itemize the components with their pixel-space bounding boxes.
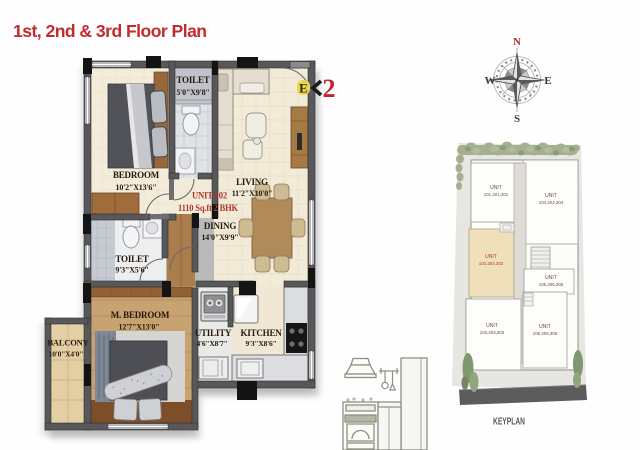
svg-text:9'3"X5'6": 9'3"X5'6" <box>115 266 148 275</box>
svg-text:5'0"X9'8": 5'0"X9'8" <box>176 88 209 97</box>
svg-text:12'7"X13'0": 12'7"X13'0" <box>119 323 160 332</box>
svg-text:UNIT: UNIT <box>545 275 557 281</box>
svg-text:KEYPLAN: KEYPLAN <box>493 417 525 428</box>
svg-text:UNIT-102: UNIT-102 <box>192 192 227 202</box>
svg-text:14'0"X9'9": 14'0"X9'9" <box>201 233 238 242</box>
svg-text:10'0"X4'0": 10'0"X4'0" <box>49 350 84 359</box>
svg-text:101,201,301: 101,201,301 <box>484 192 509 197</box>
svg-text:TOILET: TOILET <box>176 75 209 85</box>
svg-text:BEDROOM: BEDROOM <box>113 170 160 180</box>
svg-text:10'2"X13'6": 10'2"X13'6" <box>116 183 157 192</box>
svg-text:KITCHEN: KITCHEN <box>240 328 282 338</box>
svg-text:1st, 2nd & 3rd Floor Plan: 1st, 2nd & 3rd Floor Plan <box>13 21 207 41</box>
svg-text:E: E <box>299 81 308 96</box>
svg-text:M. BEDROOM: M. BEDROOM <box>111 310 170 320</box>
svg-text:11'2"X10'0": 11'2"X10'0" <box>232 189 272 198</box>
svg-text:TOILET: TOILET <box>115 254 148 264</box>
svg-text:DINING: DINING <box>204 221 237 231</box>
svg-text:S: S <box>514 113 520 125</box>
svg-text:2: 2 <box>323 74 336 103</box>
svg-text:9'3"X8'6": 9'3"X8'6" <box>245 339 276 348</box>
svg-text:N: N <box>513 36 521 48</box>
svg-text:UTILITY: UTILITY <box>195 328 232 338</box>
svg-text:E: E <box>544 75 551 87</box>
svg-text:W: W <box>485 75 496 87</box>
svg-text:4'6"X8'7": 4'6"X8'7" <box>196 339 227 348</box>
svg-text:UNIT: UNIT <box>539 324 551 330</box>
svg-text:UNIT: UNIT <box>486 323 498 329</box>
svg-text:LIVING: LIVING <box>236 177 268 187</box>
svg-text:105,205,305: 105,205,305 <box>539 282 564 287</box>
svg-text:102,202,302: 102,202,302 <box>479 261 504 266</box>
svg-text:UNIT: UNIT <box>545 193 557 199</box>
svg-text:BALCONY: BALCONY <box>47 338 88 348</box>
svg-text:106,206,306: 106,206,306 <box>533 331 558 336</box>
svg-text:UNIT: UNIT <box>490 185 502 191</box>
svg-text:103,203,303: 103,203,303 <box>480 330 505 335</box>
svg-text:104,204,304: 104,204,304 <box>539 200 564 205</box>
svg-text:1110 Sq.ft 2 BHK: 1110 Sq.ft 2 BHK <box>178 204 239 214</box>
svg-text:UNIT: UNIT <box>485 254 497 260</box>
